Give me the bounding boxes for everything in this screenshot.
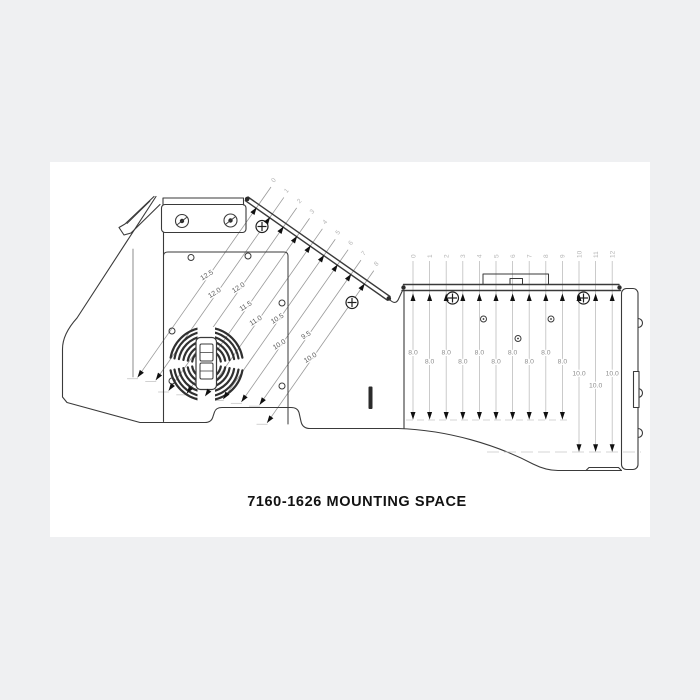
- rail-end-cap: [617, 285, 621, 289]
- dimension-tick-label: 6: [510, 254, 517, 258]
- dimension-tick-label: 12: [610, 250, 617, 258]
- dimension-tick-label: 0: [410, 254, 417, 258]
- dimension-tick-label: 7: [527, 254, 534, 258]
- dimension-tick-label: 2: [444, 254, 451, 258]
- dimension-value: 10.0: [606, 371, 619, 378]
- dimension-tick-label: 3: [460, 254, 467, 258]
- dimension-tick-label: 9: [560, 254, 567, 258]
- plate-hole-center: [550, 318, 552, 320]
- dimension-tick-label: 8: [543, 254, 550, 258]
- dimension-value: 8.0: [541, 350, 551, 357]
- end-plate-latch-bar: [634, 372, 640, 408]
- drawing-caption: 7160-1626 MOUNTING SPACE: [247, 494, 467, 510]
- dimension-value: 10.0: [572, 371, 585, 378]
- torx-screw: [447, 292, 459, 304]
- locator-tick: [369, 387, 373, 410]
- mounting-space-drawing: 012345678 0123456789101112: [0, 0, 700, 700]
- rail-end-cap: [401, 285, 405, 289]
- drawing-sheet: [50, 162, 650, 537]
- dimension-value: 8.0: [508, 350, 518, 357]
- dimension-tick-label: 4: [477, 254, 484, 258]
- dimension-value: 8.0: [524, 359, 534, 366]
- dimension-value: 8.0: [441, 350, 451, 357]
- dimension-value: 8.0: [558, 359, 568, 366]
- dimension-tick-label: 1: [427, 254, 434, 258]
- dimension-value: 8.0: [408, 350, 418, 357]
- rail-end-cap: [245, 197, 250, 202]
- page-background: 012345678 0123456789101112: [0, 0, 700, 700]
- dimension-value: 8.0: [491, 359, 501, 366]
- dimension-tick-label: 10: [576, 250, 583, 258]
- dimension-tick-label: 11: [593, 251, 600, 258]
- torx-screw: [346, 297, 358, 309]
- dimension-value: 10.0: [589, 383, 602, 390]
- dimension-value: 8.0: [425, 359, 435, 366]
- plate-hole-center: [483, 318, 485, 320]
- dimension-tick-label: 5: [493, 254, 500, 258]
- dimension-value: 8.0: [475, 350, 485, 357]
- plate-hole-center: [517, 338, 519, 340]
- dimension-value: 8.0: [458, 359, 468, 366]
